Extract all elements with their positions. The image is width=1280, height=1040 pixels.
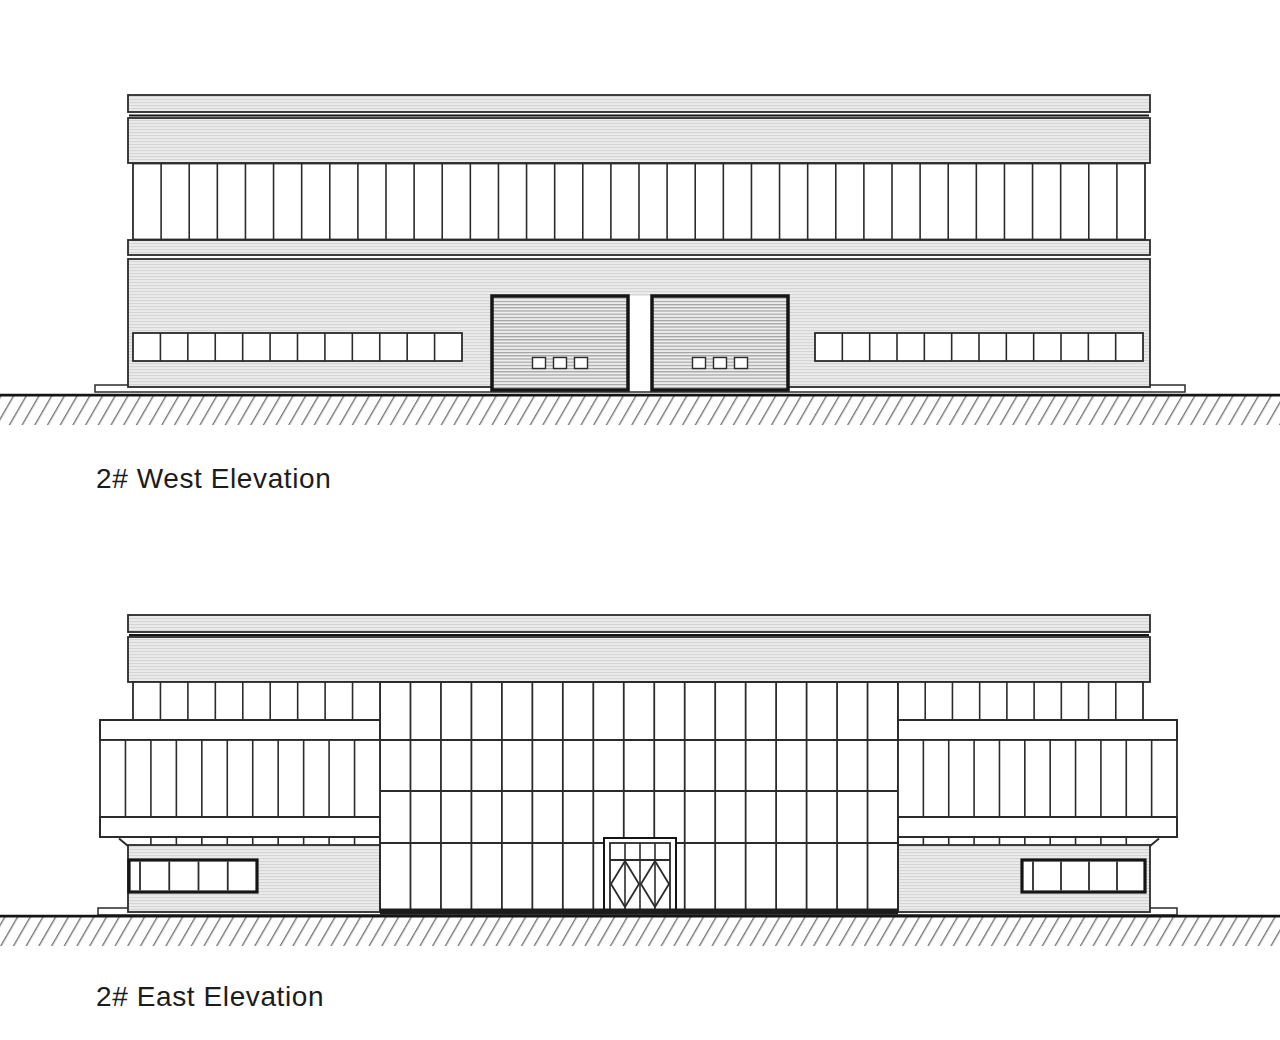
elevation-sheet: 2# West Elevation 2# East Elevation	[0, 0, 1280, 1040]
wing-left	[100, 720, 380, 846]
clerestory-left	[133, 682, 380, 720]
west-elevation-drawing	[0, 95, 1280, 425]
door-pier	[628, 296, 652, 391]
strip-window-left	[129, 860, 257, 892]
strip-window-right	[1022, 860, 1145, 892]
east-elevation-drawing	[0, 615, 1280, 946]
clerestory-right	[898, 682, 1143, 720]
parapet-and-band	[128, 615, 1150, 682]
lower-window-band-right	[815, 333, 1143, 361]
wing-right	[898, 720, 1177, 846]
upper-window-band	[133, 164, 1145, 240]
curtain-wall-base	[380, 909, 898, 915]
roller-door-right	[652, 296, 788, 390]
east-elevation-label: 2# East Elevation	[96, 981, 324, 1013]
entrance-door	[604, 838, 676, 912]
roller-door-left	[492, 296, 628, 390]
drawing-canvas	[0, 0, 1280, 1040]
lower-window-band-left	[133, 333, 462, 361]
west-elevation-label: 2# West Elevation	[96, 463, 331, 495]
